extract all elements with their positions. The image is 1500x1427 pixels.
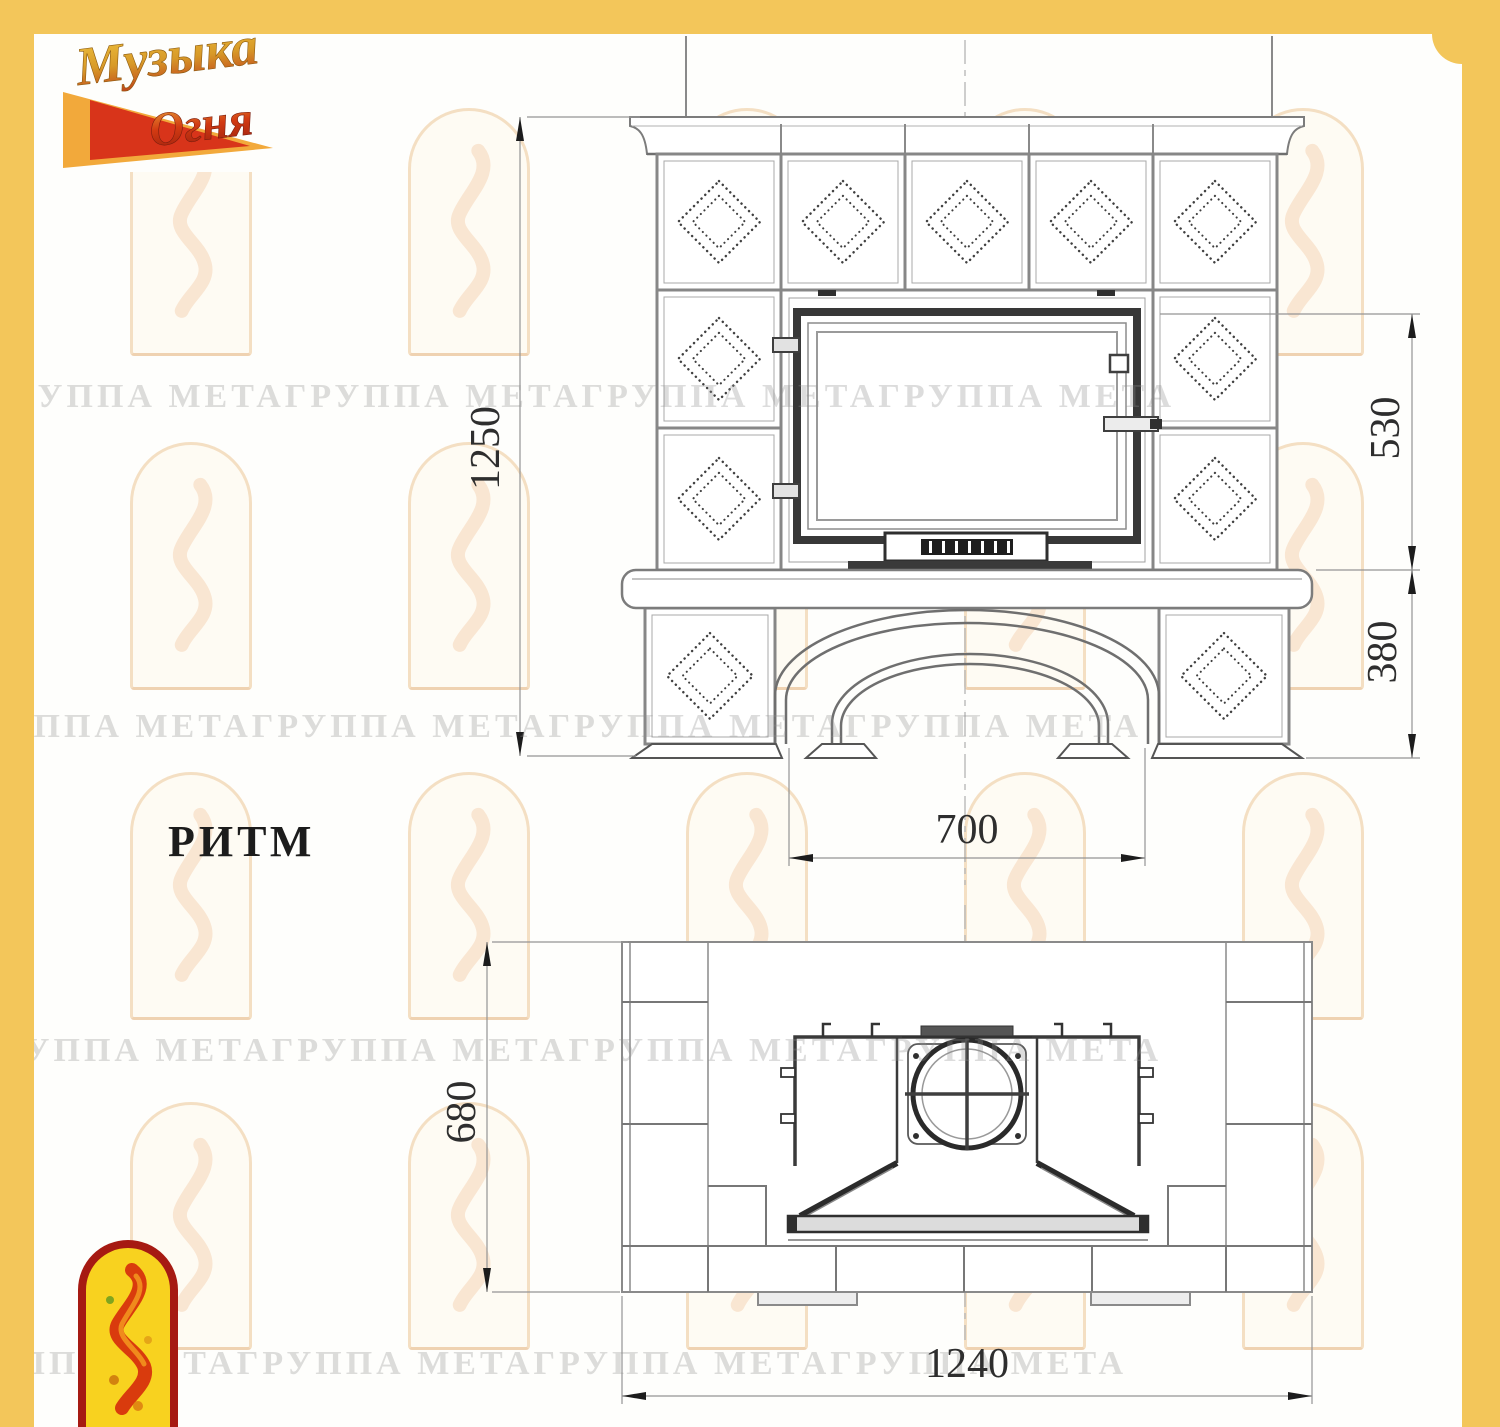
frame-top-band <box>0 0 1500 34</box>
base-arch <box>775 610 1159 744</box>
plan-view <box>622 905 1312 1340</box>
mantel-shelf <box>622 570 1312 608</box>
dim-plan-width: 1240 <box>925 1340 1009 1388</box>
dim-front-height: 1250 <box>462 406 510 490</box>
front-view <box>622 36 1312 885</box>
frame-left-band <box>0 0 34 1427</box>
dim-firebox-height: 530 <box>1362 397 1410 460</box>
flame-figure-icon <box>86 1248 170 1427</box>
firebox-door <box>773 312 1162 540</box>
dim-base-height: 380 <box>1359 621 1407 684</box>
model-name: РИТМ <box>168 816 315 867</box>
door-handle <box>1104 417 1158 431</box>
page: ГРУППА МЕТАГРУППА МЕТАГРУППА МЕТАГРУППА … <box>0 0 1500 1427</box>
technical-drawing <box>0 0 1500 1427</box>
dim-plan-depth: 680 <box>438 1081 486 1144</box>
dim-portal-width: 700 <box>936 806 999 854</box>
door-glass <box>817 332 1117 520</box>
hinge-bottom <box>773 484 799 498</box>
door-lock <box>1110 355 1128 372</box>
frame-right-band <box>1462 0 1500 1427</box>
hinge-top <box>773 338 799 352</box>
emblem-logo <box>78 1240 178 1427</box>
cornice <box>630 117 1304 154</box>
emblem-arch <box>78 1240 178 1427</box>
feet <box>632 744 1302 758</box>
